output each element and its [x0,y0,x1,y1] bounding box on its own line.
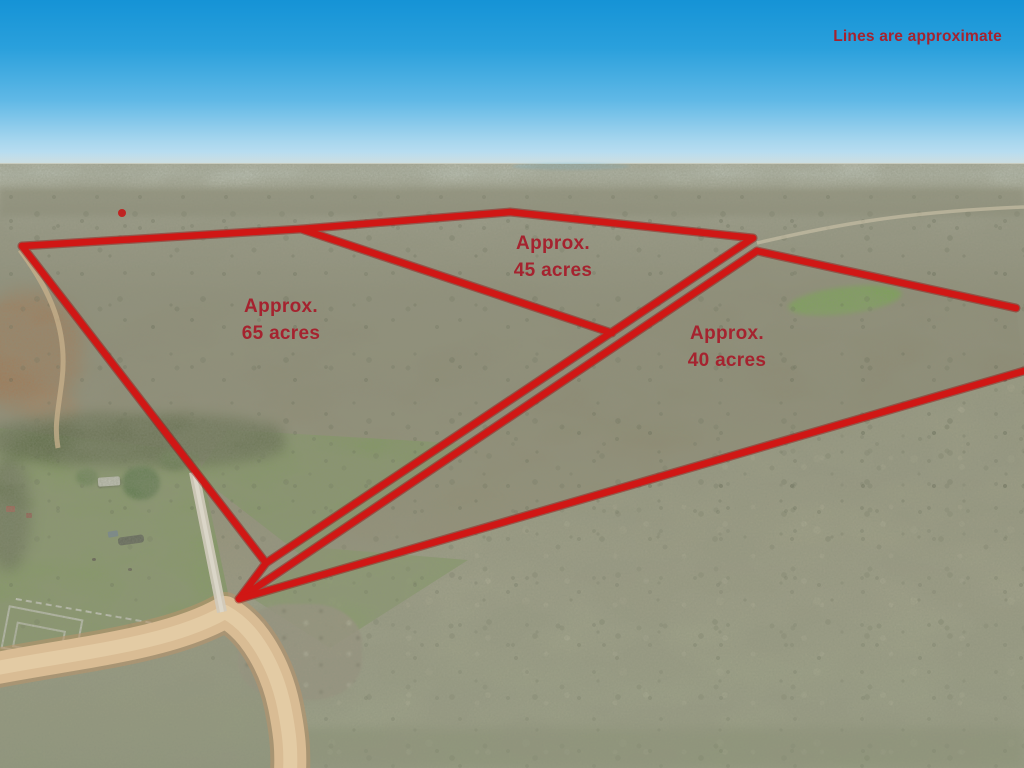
disclaimer-text: Lines are approximate [833,28,1002,46]
red-marker-dot [118,209,126,217]
photo-texture-and-boundary-overlay [0,0,1024,768]
terrain-fine-texture [0,164,1024,768]
parcel-label-40-acres: Approx. 40 acres [688,320,766,374]
aerial-property-photo: Approx. 65 acres Approx. 45 acres Approx… [0,0,1024,768]
parcel-label-line2: 45 acres [514,257,592,284]
parcel-label-line1: Approx. [242,293,320,320]
parcel-label-line1: Approx. [688,320,766,347]
parcel-label-line2: 40 acres [688,347,766,374]
parcel-label-line2: 65 acres [242,320,320,347]
parcel-label-65-acres: Approx. 65 acres [242,293,320,347]
parcel-label-line1: Approx. [514,230,592,257]
parcel-label-45-acres: Approx. 45 acres [514,230,592,284]
